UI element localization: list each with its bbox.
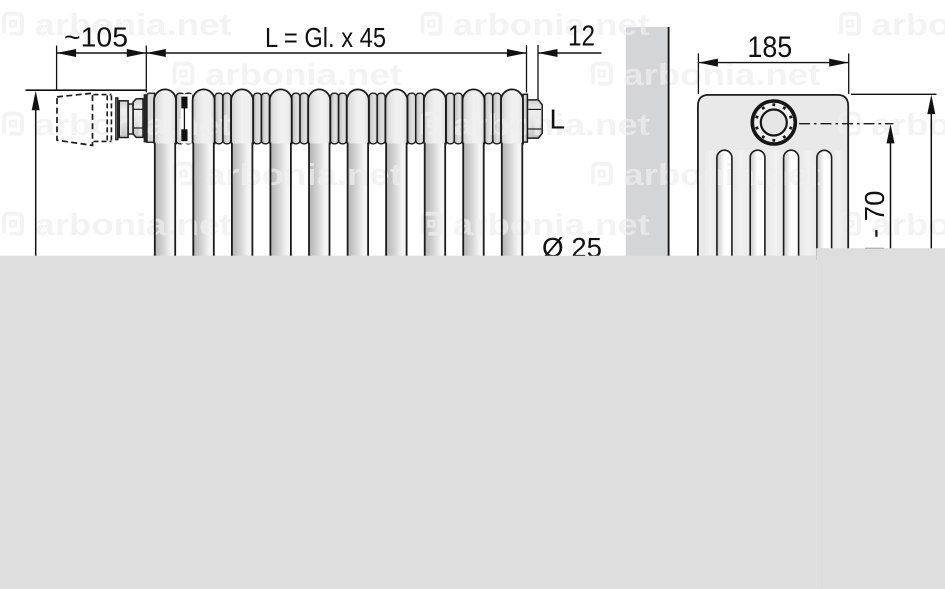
- svg-text:arbonia.net: arbonia.net: [623, 158, 820, 192]
- svg-text:arbonia.net: arbonia.net: [35, 208, 232, 242]
- svg-text:arbonia.net: arbonia.net: [453, 8, 650, 42]
- svg-text:L = Gl. x 45: L = Gl. x 45: [265, 22, 386, 53]
- svg-text:~105: ~105: [64, 22, 128, 53]
- svg-text:arbonia.net: arbonia.net: [871, 8, 945, 42]
- svg-text:12: 12: [568, 20, 595, 52]
- svg-text:185: 185: [747, 31, 792, 64]
- svg-text:arbonia.net: arbonia.net: [205, 158, 402, 192]
- svg-text:L: L: [550, 103, 566, 134]
- svg-text:arbonia.net: arbonia.net: [205, 58, 402, 92]
